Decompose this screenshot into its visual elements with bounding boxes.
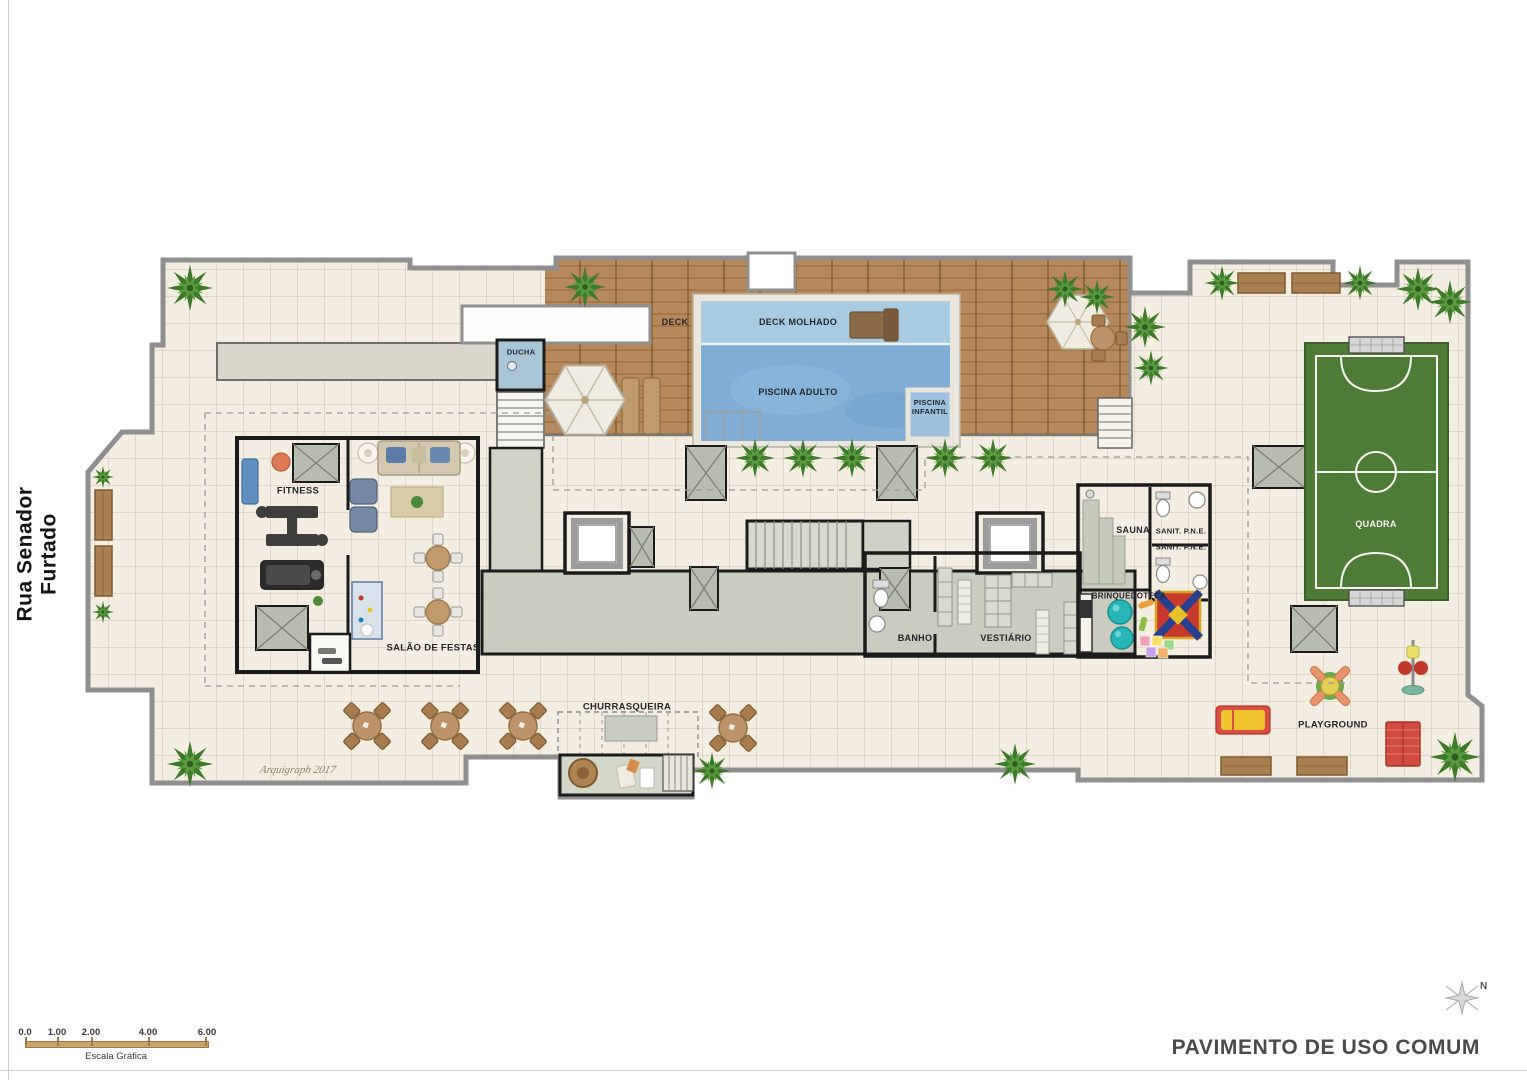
room-label-banho: BANHO <box>898 633 933 643</box>
patio-table-1 <box>327 686 406 765</box>
room-label-sauna: SAUNA <box>1116 525 1150 535</box>
room-label-deck: DECK <box>662 317 689 327</box>
room-label-playground: PLAYGROUND <box>1298 720 1368 731</box>
elevator-2 <box>977 513 1043 573</box>
room-label-fitness: FITNESS <box>277 486 319 497</box>
hall-connector <box>490 448 542 573</box>
patio-table-4 <box>693 688 772 767</box>
deck-access-stairs <box>497 392 544 448</box>
room-label-piscina-adulto: PISCINA ADULTO <box>758 387 837 397</box>
street-name-label: Rua Senador Furtado <box>14 457 62 652</box>
spring-toy <box>1398 640 1428 695</box>
scale-bar-caption: Escala Gráfica <box>25 1051 207 1062</box>
scale-bar: 0.0 1.00 2.00 4.00 6.00 Escala Gráfica <box>25 1027 225 1065</box>
room-label-sanit-pne-2: SANIT. P.N.E. <box>1156 543 1206 552</box>
scale-tickmark <box>205 1037 207 1046</box>
roof-notch <box>748 253 795 290</box>
access-ramp <box>217 343 500 380</box>
page-edge-left <box>8 0 9 1080</box>
patio-table-2 <box>405 686 484 765</box>
scale-tick-4: 6.00 <box>198 1027 217 1038</box>
deck-right-stairs <box>1098 398 1132 448</box>
party-dining-table-1 <box>414 534 462 582</box>
floor-plan-page: DECK DECK MOLHADO PISCINA ADULTO PISCINA… <box>0 0 1527 1080</box>
toy-car <box>1216 706 1270 734</box>
deck-loungers <box>622 378 660 434</box>
room-label-deck-molhado: DECK MOLHADO <box>759 317 837 327</box>
compass-north-label: N <box>1480 981 1487 992</box>
shower-drain-icon <box>508 362 517 371</box>
room-label-brinquedoteca: BRINQUEDOTECA <box>1092 592 1167 601</box>
party-dining-table-2 <box>414 588 462 636</box>
scale-tickmark <box>57 1037 59 1046</box>
scale-tickmark <box>148 1037 150 1046</box>
scale-tickmark <box>91 1037 93 1046</box>
goal-top <box>1349 337 1404 353</box>
room-label-sanit-pne-1: SANIT. P.N.E. <box>1156 527 1206 536</box>
room-label-ducha: DUCHA <box>507 348 536 357</box>
compass-rose-icon <box>1445 981 1479 1015</box>
sports-court <box>1305 337 1448 606</box>
deck-umbrella-left <box>545 365 625 434</box>
room-label-vestiario: VESTIÁRIO <box>980 633 1031 643</box>
goal-bottom <box>1349 590 1404 606</box>
scale-tickmark <box>25 1037 27 1046</box>
room-label-quadra: QUADRA <box>1355 519 1396 529</box>
play-mat <box>1386 722 1420 766</box>
patio-table-3 <box>483 686 562 765</box>
pool-lounger <box>850 309 898 341</box>
elevator-1 <box>565 513 629 573</box>
sheet-title: PAVIMENTO DE USO COMUM <box>1172 1036 1480 1060</box>
room-label-piscina-infantil: PISCINA INFANTIL <box>905 398 955 416</box>
floor-plan-drawing <box>0 0 1527 1080</box>
room-label-churrasqueira: CHURRASQUEIRA <box>583 702 671 713</box>
scale-bar-rule <box>25 1041 209 1048</box>
architect-signature: Arquigraph 2017 <box>259 764 337 776</box>
bbq-area <box>558 712 698 795</box>
carousel-toy <box>1309 665 1351 707</box>
page-edge-bottom <box>0 1070 1527 1071</box>
room-label-salao-de-festas: SALÃO DE FESTAS <box>387 643 480 654</box>
main-stairs <box>747 521 910 569</box>
planter-strip <box>462 306 650 343</box>
